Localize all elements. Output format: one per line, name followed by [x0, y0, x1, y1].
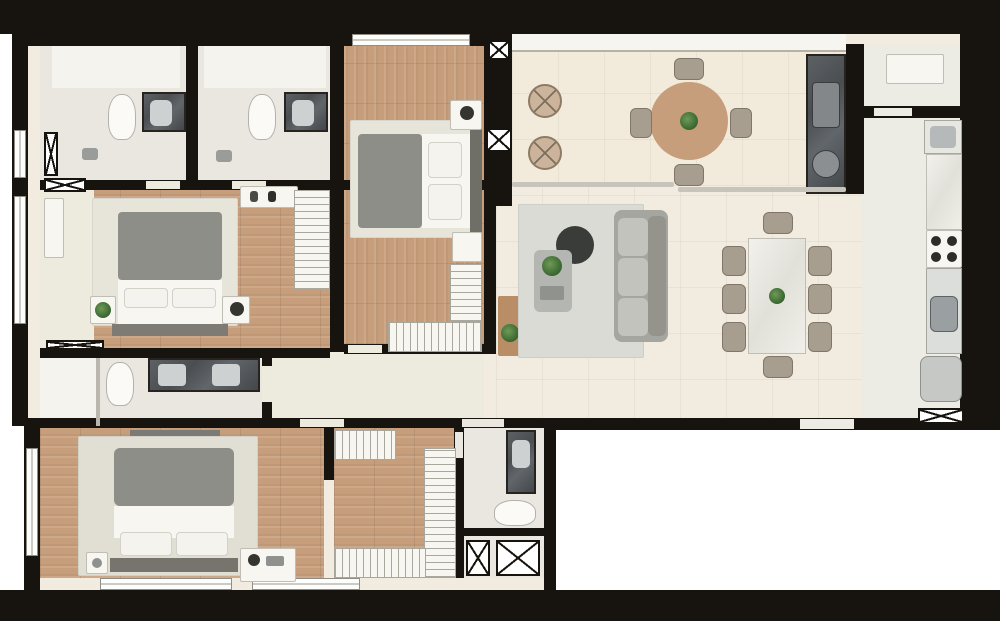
- fridge: [920, 356, 962, 402]
- door-gap-kitchen-divider: [874, 108, 912, 116]
- bbq-sink: [812, 150, 840, 178]
- dining-chair-top: [763, 212, 793, 234]
- wall-bath-divider: [186, 46, 198, 182]
- slippers-a: [250, 191, 258, 202]
- window-bedroom-2: [352, 34, 470, 46]
- window-left-master: [26, 448, 38, 556]
- door-gap-bath-3: [262, 366, 272, 402]
- bed-master-pillow-right: [176, 532, 228, 556]
- terrace-chair-top: [674, 58, 704, 80]
- lamp-bed2: [460, 106, 474, 120]
- bed1-duvet: [118, 212, 222, 280]
- door-gap-bath-4: [462, 419, 504, 427]
- window-left-bath: [14, 130, 26, 178]
- shower-glass-bath-3: [96, 358, 100, 426]
- plant-coffee-table: [542, 256, 562, 276]
- bed2-pillow-bottom: [428, 184, 462, 220]
- toilet-bath-3: [106, 362, 134, 406]
- wall-living-bottom: [556, 418, 962, 430]
- fixture-bath-2: [216, 150, 232, 162]
- door-gap-master-suite: [300, 419, 344, 427]
- kitchen-stove: [926, 230, 962, 268]
- wall-closet-left: [324, 428, 334, 480]
- closet-rack-top: [334, 430, 396, 460]
- dining-chair-left-2: [722, 284, 746, 314]
- toilet-bath-4: [494, 500, 536, 526]
- dresser-bedroom-2: [452, 232, 482, 262]
- floor-shower-1: [52, 46, 180, 88]
- door-gap-service: [800, 419, 854, 429]
- dining-chair-left-1: [722, 246, 746, 276]
- bed1-pillow-right: [172, 288, 216, 308]
- wall-bbq: [846, 44, 864, 194]
- wardrobe-bed2-vertical: [450, 264, 482, 322]
- bed1-pillow-left: [124, 288, 168, 308]
- terrace-railing: [512, 34, 846, 52]
- lounge-stool-2: [528, 136, 562, 170]
- wardrobe-bedroom-1: [294, 190, 330, 290]
- shaft-master-small: [466, 540, 490, 576]
- sliding-door-left: [512, 182, 674, 187]
- terrace-chair-left: [630, 108, 652, 138]
- window-master-1: [100, 578, 232, 590]
- books-coffee-table: [540, 286, 564, 300]
- bed-master-duvet: [114, 448, 234, 506]
- bed1-headboard: [112, 324, 228, 336]
- kitchen-sink: [930, 296, 958, 332]
- wall-bed1-bed2: [330, 46, 344, 352]
- burner-1: [931, 236, 941, 246]
- washer-service: [886, 54, 944, 84]
- bed2-pillow-top: [428, 142, 462, 178]
- kitchen-counter-1: [926, 154, 962, 230]
- dining-chair-right-2: [808, 284, 832, 314]
- wall-bath4-shaft-divider: [458, 528, 544, 536]
- bbq-grill: [812, 82, 840, 128]
- wall-right-lower: [544, 426, 556, 590]
- shaft-corner-bath1: [44, 132, 58, 176]
- sofa-back: [648, 216, 666, 336]
- shaft-left-1: [44, 178, 86, 192]
- closet-rack-right: [424, 448, 456, 578]
- dining-chair-right-1: [808, 246, 832, 276]
- sofa-cushion-3: [618, 298, 648, 336]
- door-gap-bedroom-2: [348, 345, 382, 353]
- bed2-headboard: [470, 128, 482, 232]
- sliding-door-right: [678, 187, 846, 192]
- terrace-chair-right: [730, 108, 752, 138]
- toilet-bath-1: [108, 94, 136, 140]
- bed2-duvet: [358, 134, 422, 228]
- service-sink-basin: [930, 126, 956, 148]
- shaft-master-large: [496, 540, 540, 576]
- shaft-left-2: [46, 340, 104, 350]
- bed-master-headboard: [110, 558, 238, 572]
- burner-2: [947, 236, 957, 246]
- closet-rack-bottom: [334, 548, 426, 578]
- terrace-chair-bottom: [674, 164, 704, 186]
- sink-bath-3-right: [212, 364, 240, 386]
- tray-master: [266, 556, 284, 566]
- lamp-master: [248, 554, 260, 566]
- sink-bath-3-left: [158, 364, 186, 386]
- lamp-bed1: [230, 302, 244, 316]
- floor-shower-2: [204, 46, 326, 88]
- plant-bed1: [95, 302, 111, 318]
- window-left-hall: [14, 196, 26, 324]
- dining-chair-right-3: [808, 322, 832, 352]
- cabinet-bedroom-1: [44, 198, 64, 258]
- lounge-stool-1: [528, 84, 562, 118]
- wall-top-band: [0, 0, 1000, 34]
- shaft-column-2: [486, 128, 512, 152]
- slippers-b: [268, 191, 276, 202]
- wall-bottom-band: [0, 590, 1000, 621]
- plant-console: [501, 324, 519, 342]
- dining-chair-bottom: [763, 356, 793, 378]
- floor-shower-3: [40, 358, 96, 426]
- plant-dining-table: [769, 288, 785, 304]
- wardrobe-bed2-horizontal: [388, 322, 482, 352]
- sink-bath-1: [150, 100, 172, 126]
- shaft-kitchen: [918, 408, 964, 424]
- plant-terrace-table: [680, 112, 698, 130]
- sink-bath-4: [512, 440, 530, 468]
- burner-4: [947, 252, 957, 262]
- fixture-bath-1: [82, 148, 98, 160]
- wall-right-band: [960, 0, 1000, 430]
- shaft-column-1: [488, 40, 510, 60]
- knob-side-table: [92, 558, 102, 568]
- sofa-cushion-2: [618, 258, 648, 296]
- door-gap-closet: [455, 432, 463, 458]
- sink-bath-2: [292, 100, 314, 126]
- floor-hall: [272, 354, 484, 426]
- door-gap-bath-1: [146, 181, 180, 189]
- wall-below-shaft: [484, 206, 496, 354]
- toilet-bath-2: [248, 94, 276, 140]
- sofa-cushion-1: [618, 218, 648, 256]
- floor-plan-canvas: [0, 0, 1000, 621]
- bed-master-pillow-left: [120, 532, 172, 556]
- dining-chair-left-3: [722, 322, 746, 352]
- burner-3: [931, 252, 941, 262]
